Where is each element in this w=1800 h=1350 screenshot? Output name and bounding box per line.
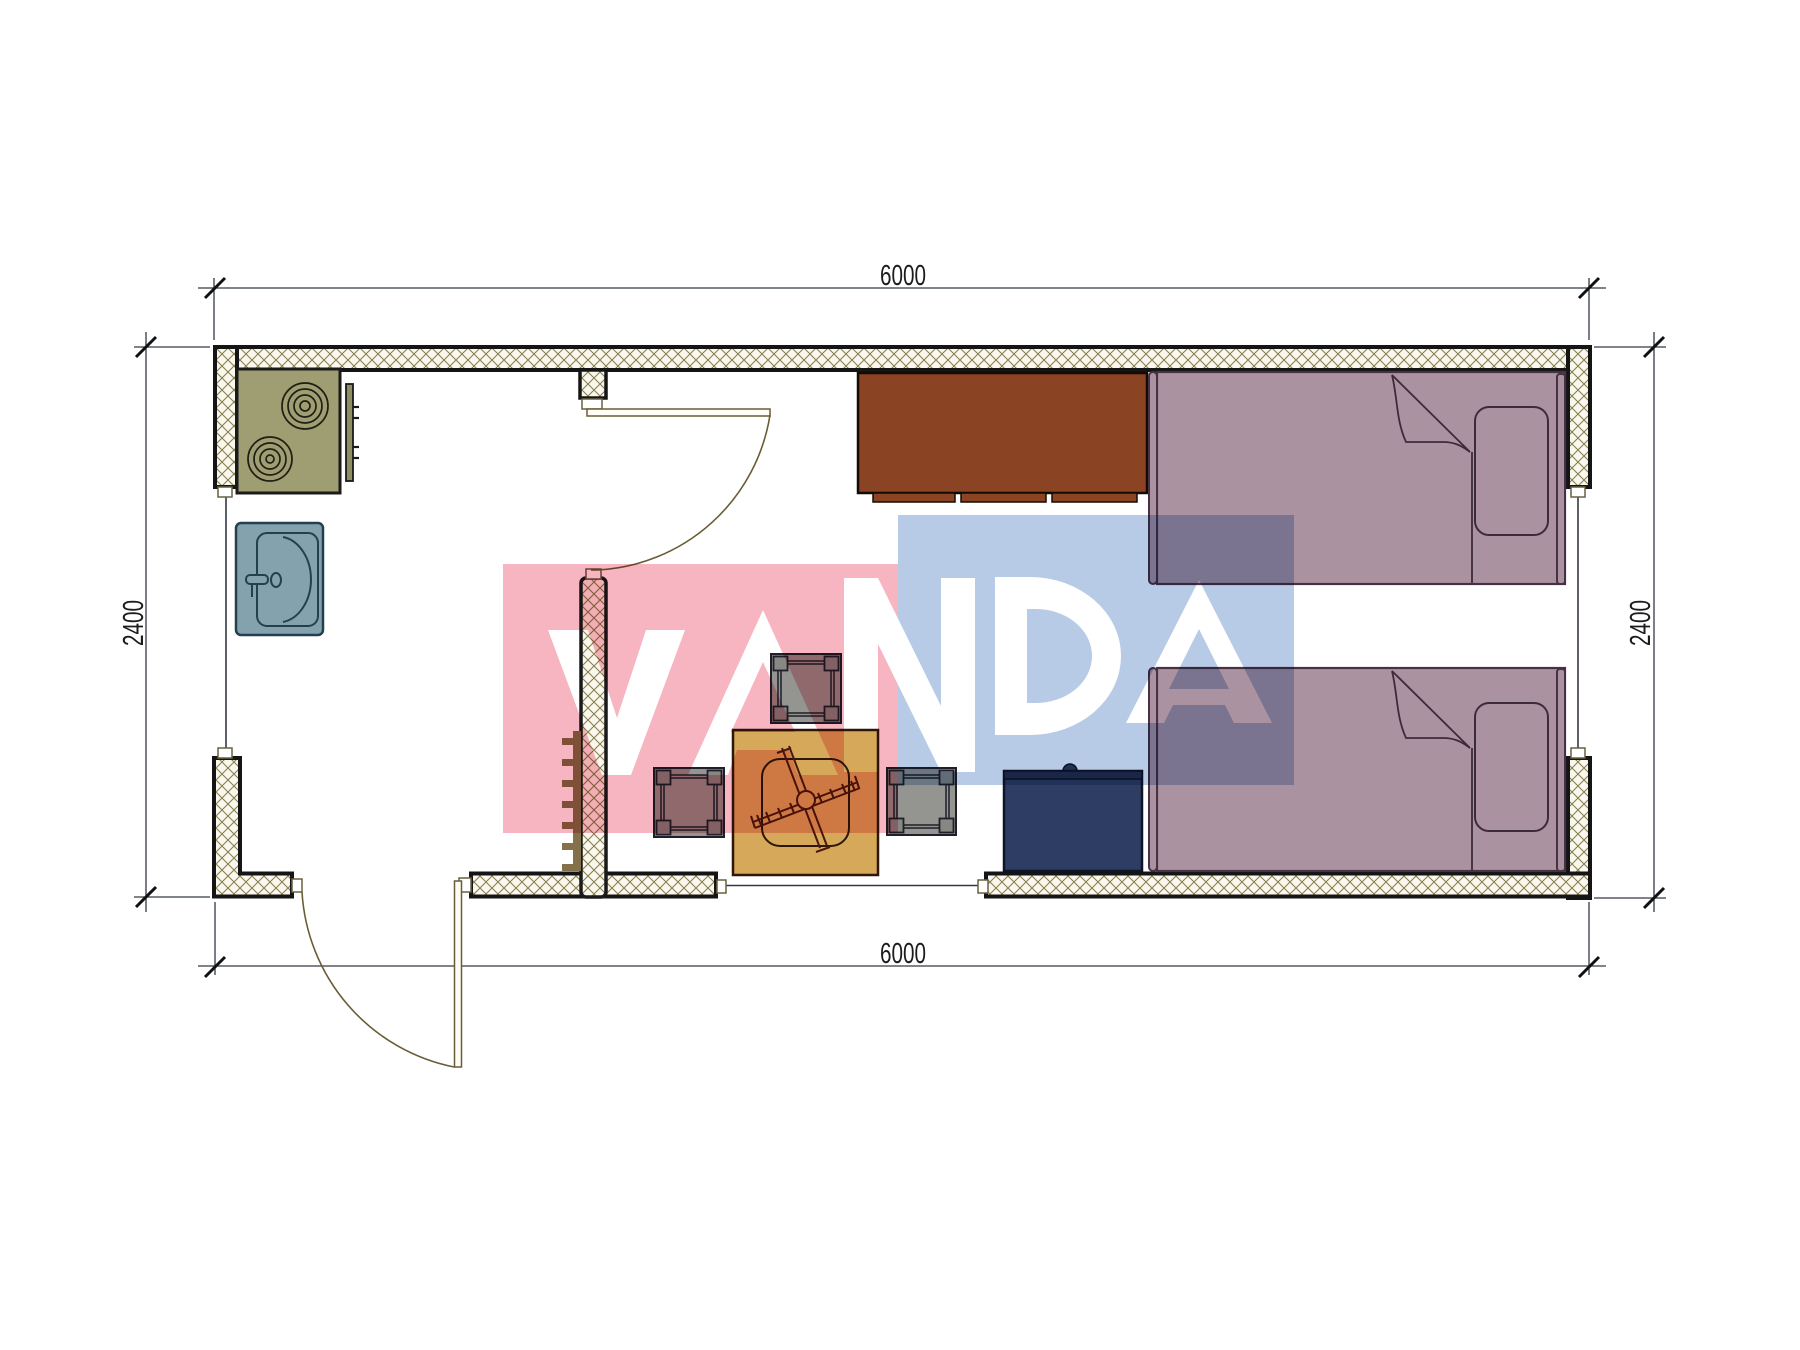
svg-text:6000: 6000: [880, 938, 926, 970]
svg-text:2400: 2400: [118, 600, 150, 646]
svg-text:6000: 6000: [880, 260, 926, 292]
svg-text:2400: 2400: [1625, 600, 1657, 646]
